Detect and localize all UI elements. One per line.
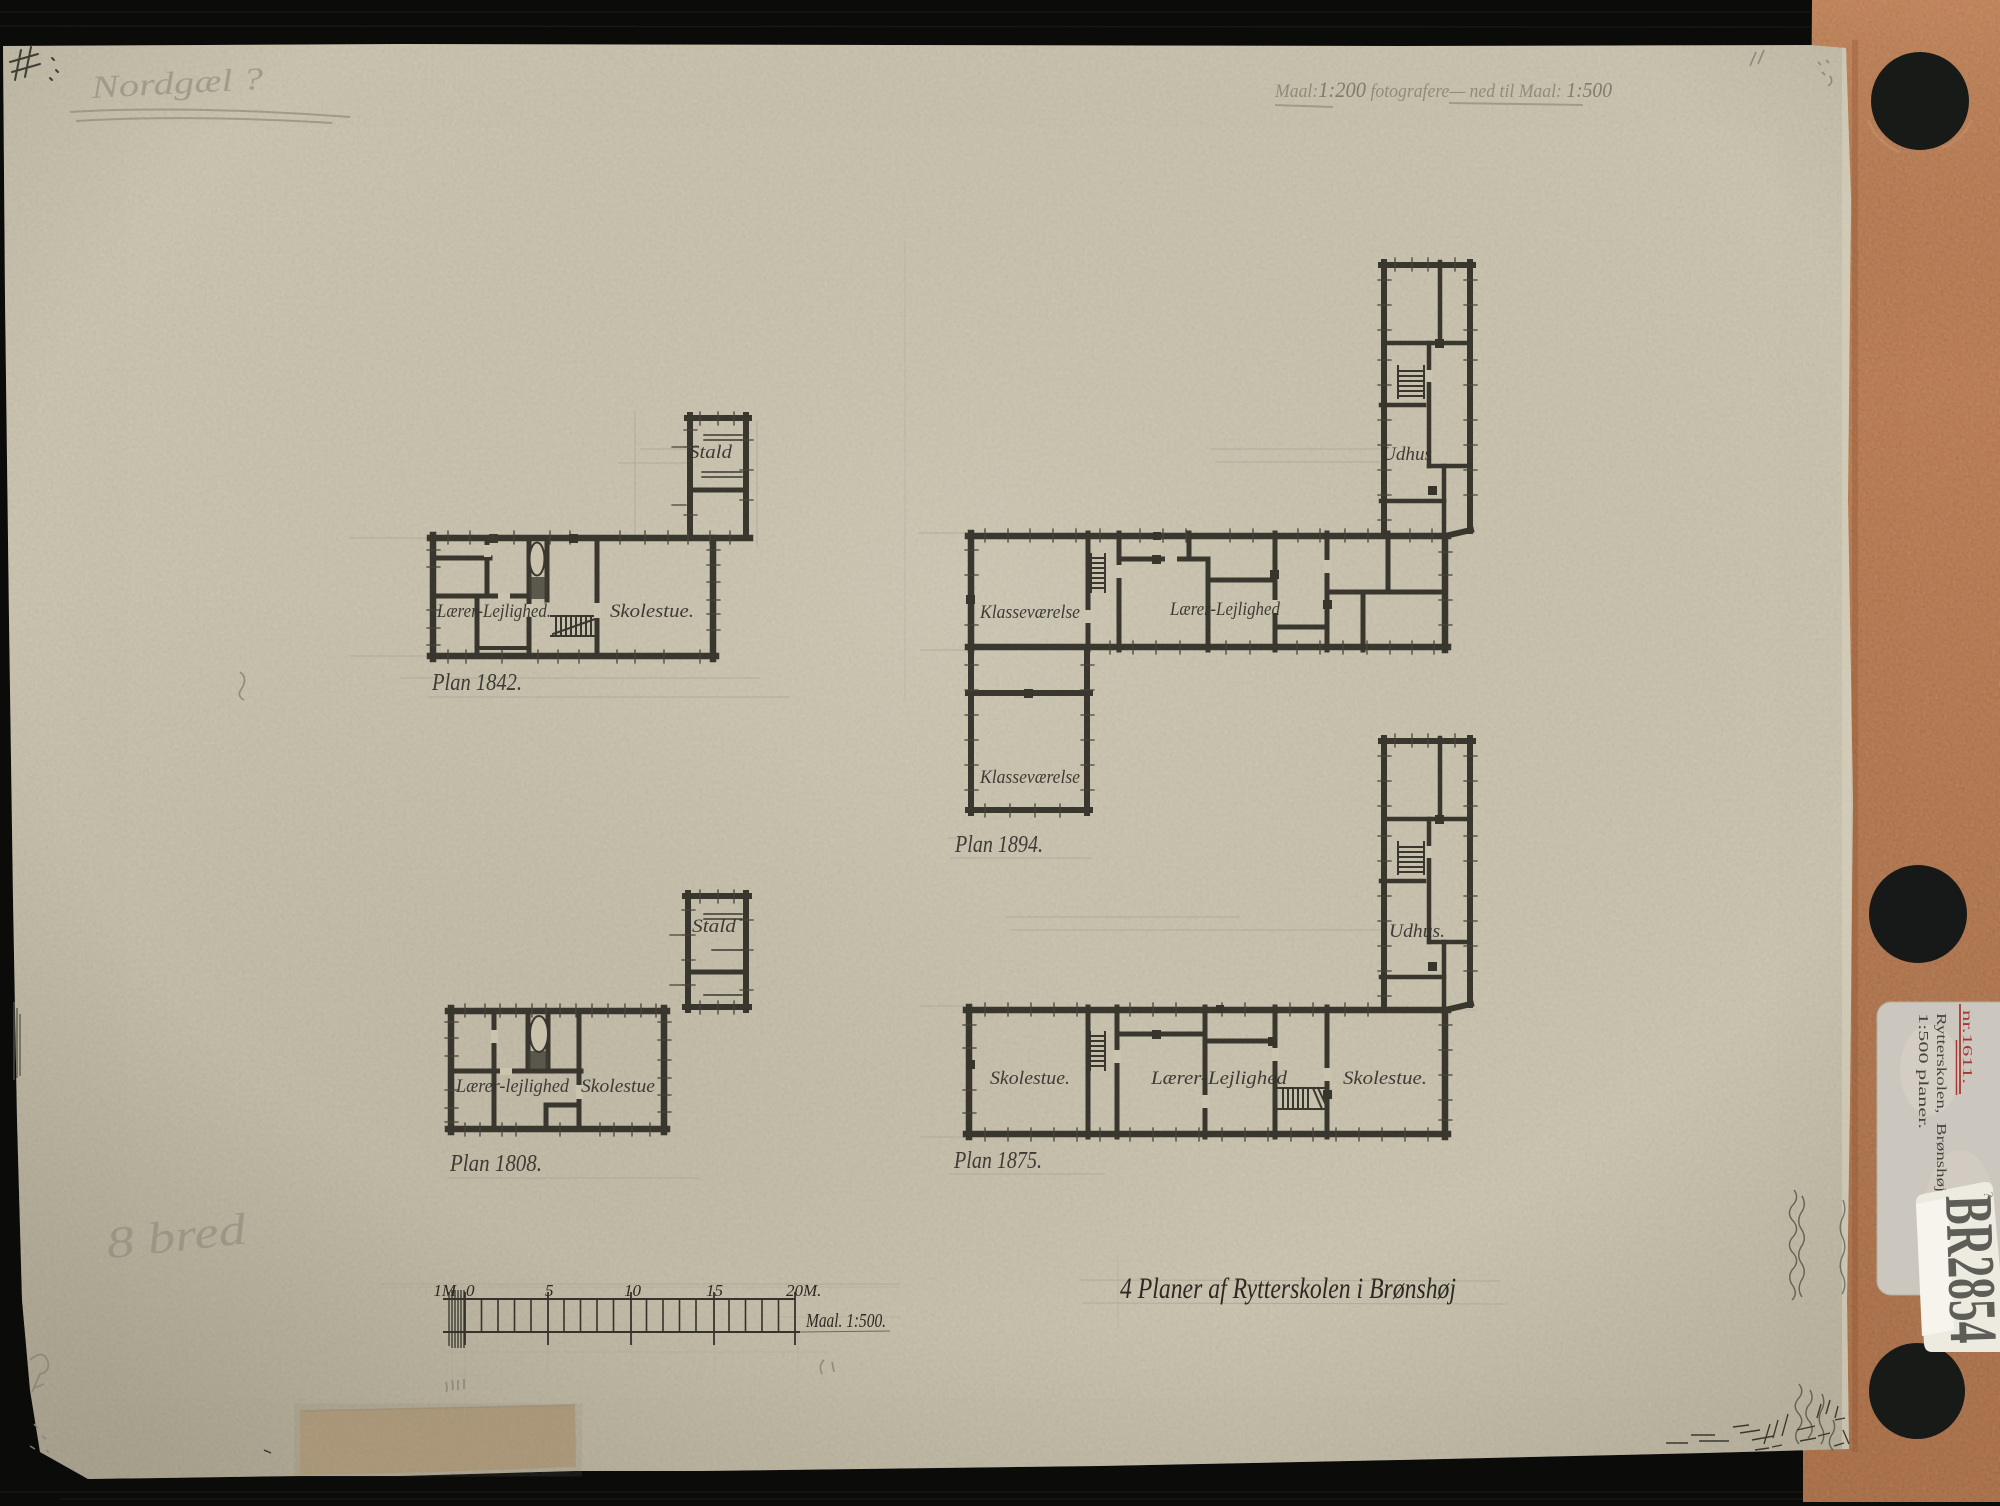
- svg-text:Skolestue.: Skolestue.: [990, 1068, 1070, 1089]
- svg-text:Klasseværelse: Klasseværelse: [979, 767, 1080, 788]
- svg-text:0: 0: [466, 1281, 475, 1300]
- svg-text:nr.1611.: nr.1611.: [1959, 1010, 1974, 1084]
- svg-text:Klasseværelse: Klasseværelse: [979, 602, 1080, 623]
- svg-text:Skolestue: Skolestue: [581, 1076, 655, 1097]
- svg-text:Lærer-Lejlighed: Lærer-Lejlighed: [1169, 599, 1280, 620]
- svg-text:Stald: Stald: [692, 916, 737, 937]
- svg-text:Stald: Stald: [689, 442, 733, 463]
- svg-text:Lærer-Lejlighed: Lærer-Lejlighed: [1150, 1068, 1288, 1089]
- svg-text:Rytterskolen, Brønshøj,: Rytterskolen, Brønshøj,: [1933, 1013, 1948, 1197]
- svg-text:Lærer-Lejlighed.: Lærer-Lejlighed.: [436, 601, 551, 622]
- svg-text:Maal:1:200 fotografere— ned ti: Maal:1:200 fotografere— ned til Maal: 1:…: [1274, 77, 1612, 102]
- svg-text:Lærer-lejlighed: Lærer-lejlighed: [455, 1076, 569, 1097]
- svg-text:5: 5: [545, 1281, 554, 1300]
- svg-text:Plan 1894.: Plan 1894.: [954, 832, 1043, 858]
- svg-text:Plan 1808.: Plan 1808.: [449, 1151, 542, 1177]
- svg-text:Maal. 1:500.: Maal. 1:500.: [805, 1310, 886, 1332]
- svg-text:Skolestue.: Skolestue.: [1343, 1068, 1427, 1089]
- svg-text:1:500 planer.: 1:500 planer.: [1915, 1013, 1930, 1129]
- svg-text:Udhus: Udhus: [1382, 444, 1432, 465]
- svg-text:Udhus.: Udhus.: [1389, 921, 1445, 942]
- svg-text:Plan 1842.: Plan 1842.: [431, 670, 522, 696]
- svg-text:1M: 1M: [433, 1281, 457, 1300]
- svg-text:10: 10: [624, 1281, 642, 1300]
- svg-text:Skolestue.: Skolestue.: [610, 601, 694, 622]
- svg-text:BR2854: BR2854: [1931, 1194, 2000, 1345]
- svg-text:Plan 1875.: Plan 1875.: [953, 1148, 1042, 1174]
- svg-text:4 Planer af Rytterskolen i Brø: 4 Planer af Rytterskolen i Brønshøj: [1120, 1272, 1456, 1305]
- svg-text:15: 15: [706, 1281, 723, 1300]
- svg-text:?: ?: [1981, 1192, 1996, 1199]
- svg-text:20M.: 20M.: [786, 1281, 821, 1300]
